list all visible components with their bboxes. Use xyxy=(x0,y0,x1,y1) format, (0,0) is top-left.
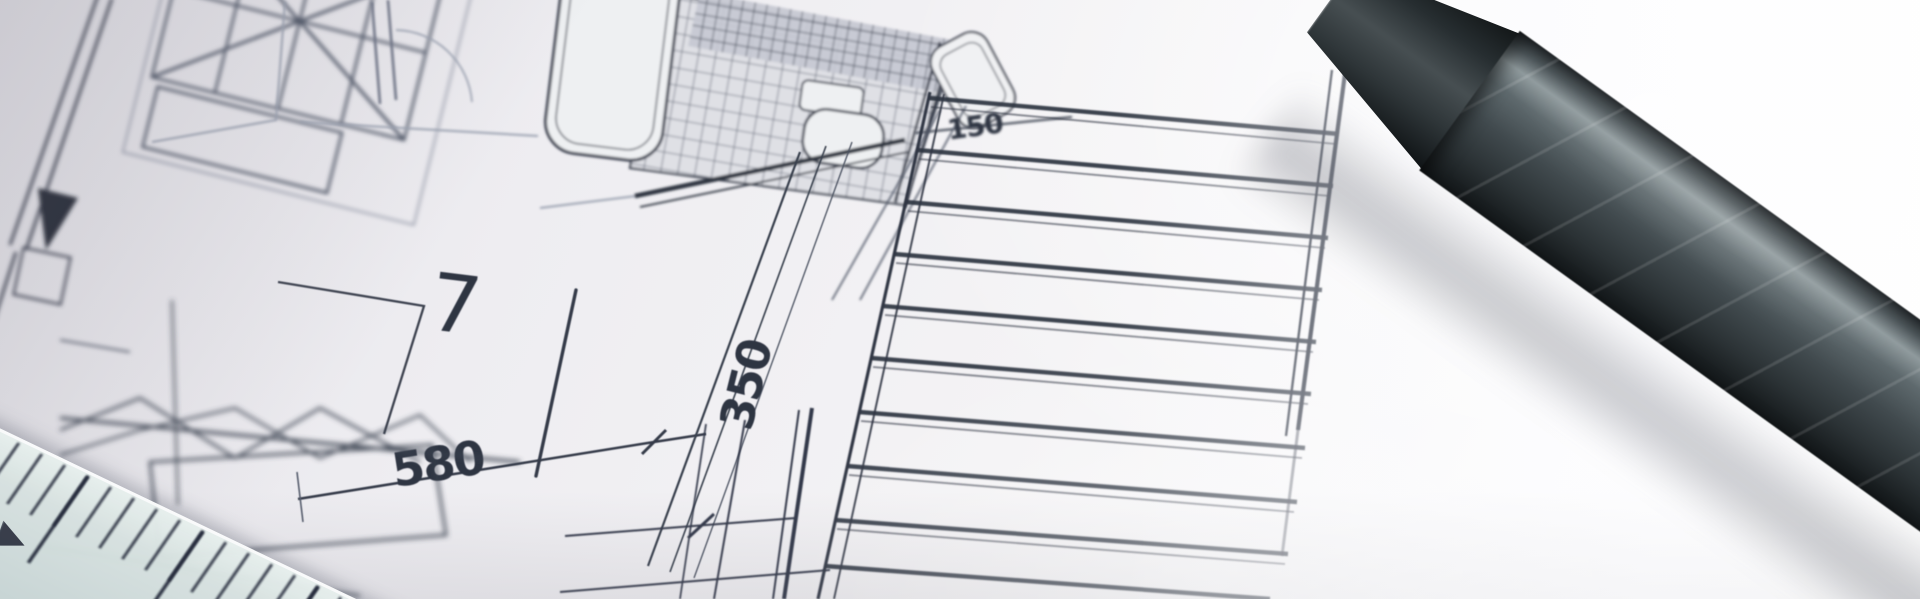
dimension-350: 350 xyxy=(648,142,852,578)
bathtub xyxy=(542,0,683,164)
leader-line xyxy=(278,282,424,434)
floor-plan-photo: 150 7 580 350 xyxy=(0,0,1920,599)
door-swing-arc xyxy=(396,30,472,102)
stair-outer-wall xyxy=(123,0,479,225)
dimension-line xyxy=(298,434,706,499)
wall-stub xyxy=(536,290,576,476)
room-number: 7 xyxy=(424,255,486,354)
wall-marker-triangle xyxy=(38,188,78,250)
door-jamb xyxy=(372,0,396,104)
dimension-580: 580 xyxy=(297,430,706,522)
bathroom xyxy=(542,0,1021,208)
oblique-tick xyxy=(642,430,666,454)
left-wall xyxy=(0,0,130,352)
lower-dimension-line xyxy=(565,518,796,536)
bed-zigzag xyxy=(60,398,420,462)
wall-marker-box xyxy=(14,248,71,305)
staircase xyxy=(123,0,479,225)
stair-landing xyxy=(143,87,342,193)
extension-line xyxy=(297,472,303,522)
stair-cross-lines xyxy=(152,0,448,140)
dimension-text-350: 350 xyxy=(709,335,783,435)
